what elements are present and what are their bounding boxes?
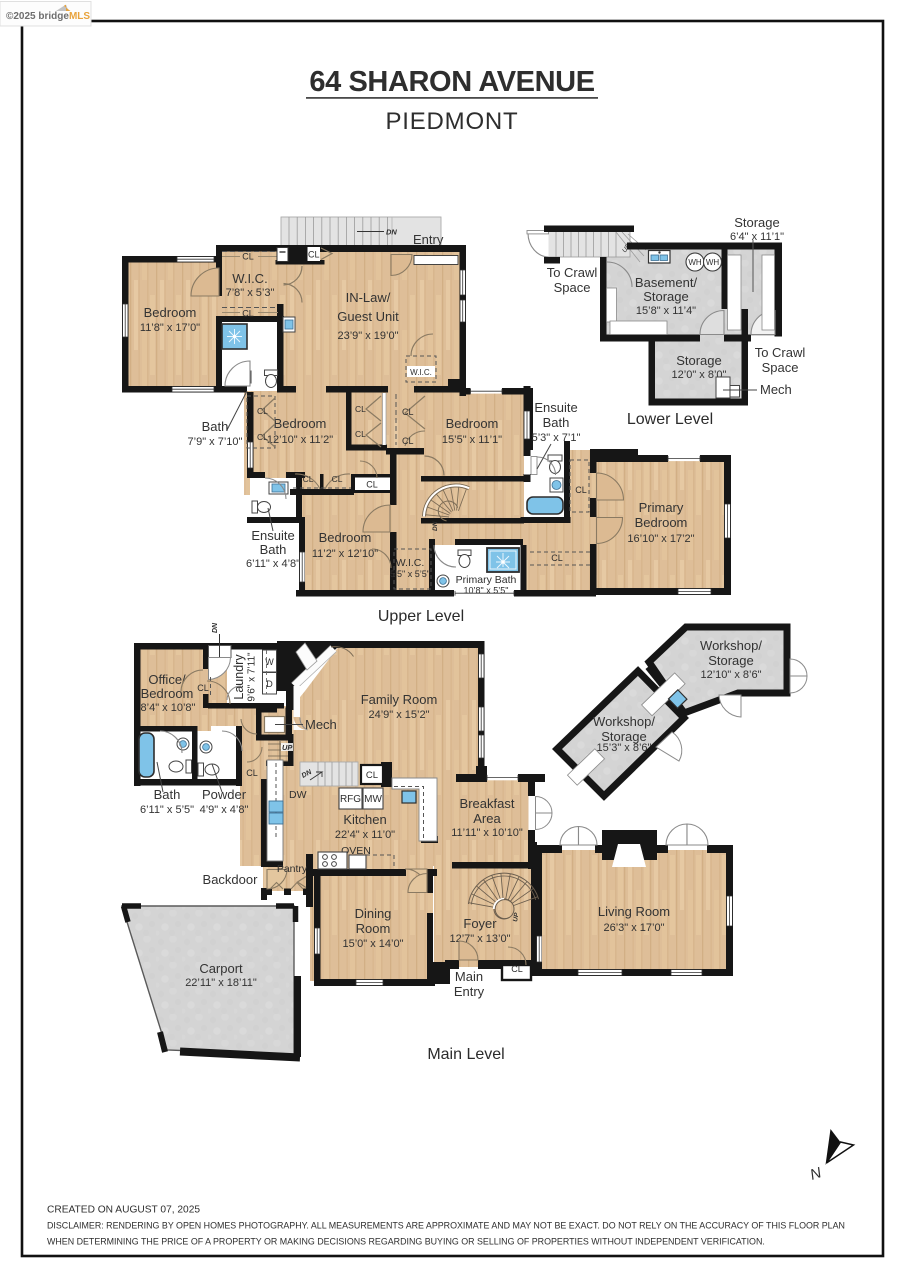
svg-text:9’6" x 7’11": 9’6" x 7’11" — [247, 652, 258, 702]
svg-text:Area: Area — [473, 811, 501, 826]
svg-text:7’9" x 7’10": 7’9" x 7’10" — [188, 436, 243, 448]
svg-text:Storage: Storage — [734, 215, 780, 230]
svg-text:Ensuite: Ensuite — [534, 400, 577, 415]
svg-text:Lower Level: Lower Level — [627, 411, 713, 428]
svg-text:CL: CL — [402, 436, 414, 446]
svg-text:Primary Bath: Primary Bath — [456, 574, 517, 586]
svg-text:Mech: Mech — [760, 382, 792, 397]
svg-text:11’2" x 12’10": 11’2" x 12’10" — [312, 548, 378, 560]
svg-text:6’4" x 11’1": 6’4" x 11’1" — [730, 231, 784, 243]
svg-text:24’9" x 15’2": 24’9" x 15’2" — [368, 709, 429, 721]
svg-text:8’4" x 10’8": 8’4" x 10’8" — [141, 702, 196, 714]
svg-text:Foyer: Foyer — [463, 916, 497, 931]
svg-text:15’5" x 11’1": 15’5" x 11’1" — [442, 434, 502, 446]
svg-text:Workshop/: Workshop/ — [593, 714, 655, 729]
svg-text:15’3" x 8’6": 15’3" x 8’6" — [597, 742, 652, 754]
svg-text:Upper Level: Upper Level — [378, 608, 464, 625]
svg-text:CL: CL — [308, 250, 320, 260]
svg-text:7’8" x 5’3": 7’8" x 5’3" — [226, 287, 275, 299]
svg-text:Powder: Powder — [202, 787, 247, 802]
svg-text:CL: CL — [257, 406, 268, 416]
svg-text:22’11" x 18’11": 22’11" x 18’11" — [185, 977, 257, 989]
svg-text:WH: WH — [706, 258, 720, 267]
svg-text:11’8" x 17’0": 11’8" x 17’0" — [140, 322, 200, 334]
svg-text:26’3" x 17’0": 26’3" x 17’0" — [603, 922, 664, 934]
svg-text:Bath: Bath — [543, 415, 570, 430]
svg-text:12’10" x 11’2": 12’10" x 11’2" — [267, 434, 333, 446]
svg-text:CL: CL — [575, 485, 587, 495]
svg-text:To Crawl: To Crawl — [755, 345, 806, 360]
svg-text:15’0" x 14’0": 15’0" x 14’0" — [342, 938, 403, 950]
svg-text:Entry: Entry — [413, 232, 444, 247]
svg-text:Breakfast: Breakfast — [460, 796, 515, 811]
svg-text:Bedroom: Bedroom — [274, 416, 327, 431]
svg-text:DN: DN — [432, 521, 439, 531]
svg-text:Bath: Bath — [154, 787, 181, 802]
svg-text:Storage: Storage — [643, 289, 689, 304]
svg-text:Kitchen: Kitchen — [343, 812, 386, 827]
svg-text:Space: Space — [554, 280, 591, 295]
svg-text:5’5" x 5’5": 5’5" x 5’5" — [390, 569, 430, 579]
svg-text:Bedroom: Bedroom — [635, 515, 688, 530]
svg-text:DW: DW — [289, 789, 307, 801]
svg-text:Basement/: Basement/ — [635, 275, 698, 290]
svg-text:WH: WH — [688, 258, 702, 267]
svg-text:To Crawl: To Crawl — [547, 265, 598, 280]
svg-text:CL: CL — [551, 553, 563, 563]
svg-text:W.I.C.: W.I.C. — [232, 271, 267, 286]
svg-text:©2025 bridgeMLS: ©2025 bridgeMLS — [6, 11, 90, 22]
svg-text:Pantry: Pantry — [277, 863, 308, 875]
svg-text:11’11" x 10’10": 11’11" x 10’10" — [451, 827, 523, 839]
svg-text:W.I.C.: W.I.C. — [396, 557, 425, 569]
svg-text:12’10" x 8’6": 12’10" x 8’6" — [700, 669, 761, 681]
svg-text:Guest Unit: Guest Unit — [337, 309, 399, 324]
svg-text:PIEDMONT: PIEDMONT — [385, 108, 518, 135]
svg-text:Entry: Entry — [454, 984, 485, 999]
svg-text:Family Room: Family Room — [361, 692, 438, 707]
svg-text:CL: CL — [366, 480, 378, 490]
svg-text:WHEN DETERMINING THE PRICE OF: WHEN DETERMINING THE PRICE OF A PROPERTY… — [47, 1237, 765, 1247]
svg-text:MW: MW — [364, 794, 382, 805]
svg-text:10’8" x 5’5": 10’8" x 5’5" — [464, 586, 509, 596]
svg-text:UP: UP — [282, 743, 293, 752]
svg-text:D: D — [266, 679, 273, 689]
svg-text:Mech: Mech — [305, 717, 337, 732]
svg-text:DN: DN — [212, 622, 219, 633]
svg-text:CL: CL — [402, 407, 414, 417]
svg-text:Space: Space — [762, 360, 799, 375]
svg-text:Storage: Storage — [708, 653, 754, 668]
svg-text:Bath: Bath — [260, 542, 287, 557]
svg-text:6’11" x 5’5": 6’11" x 5’5" — [140, 804, 194, 816]
svg-text:5’3" x 7’1": 5’3" x 7’1" — [532, 432, 581, 444]
svg-text:Ensuite: Ensuite — [251, 528, 294, 543]
svg-text:Storage: Storage — [676, 353, 722, 368]
svg-text:Office/: Office/ — [148, 672, 186, 687]
svg-text:Bedroom: Bedroom — [141, 686, 194, 701]
svg-text:15’8" x 11’4": 15’8" x 11’4" — [636, 305, 696, 317]
svg-text:N: N — [808, 1164, 824, 1184]
svg-text:Bath: Bath — [202, 419, 229, 434]
svg-text:CL: CL — [246, 768, 258, 778]
svg-text:CL: CL — [197, 683, 209, 693]
svg-text:CL: CL — [242, 309, 254, 319]
svg-text:CL: CL — [355, 404, 366, 414]
svg-text:6’11" x 4’8": 6’11" x 4’8" — [246, 558, 300, 570]
svg-text:DN: DN — [386, 228, 397, 237]
svg-text:CL: CL — [355, 429, 366, 439]
svg-text:Bedroom: Bedroom — [446, 416, 499, 431]
svg-text:Living Room: Living Room — [598, 904, 670, 919]
svg-text:Room: Room — [356, 921, 391, 936]
svg-text:Bedroom: Bedroom — [144, 305, 197, 320]
svg-text:RFG: RFG — [340, 794, 361, 805]
svg-text:Backdoor: Backdoor — [203, 872, 259, 887]
svg-text:Dining: Dining — [355, 906, 392, 921]
svg-text:Laundry: Laundry — [232, 654, 246, 700]
svg-text:CL: CL — [511, 964, 523, 974]
svg-text:Bedroom: Bedroom — [319, 530, 372, 545]
svg-text:16’10" x 17’2": 16’10" x 17’2" — [627, 533, 694, 545]
svg-text:CL: CL — [366, 770, 378, 781]
svg-text:Workshop/: Workshop/ — [700, 638, 762, 653]
svg-text:Carport: Carport — [199, 961, 243, 976]
svg-text:4’9" x 4’8": 4’9" x 4’8" — [200, 804, 249, 816]
svg-text:CL: CL — [332, 474, 343, 484]
svg-text:DISCLAIMER: RENDERING BY OPEN: DISCLAIMER: RENDERING BY OPEN HOMES PHOT… — [47, 1221, 845, 1231]
svg-text:CL: CL — [242, 252, 254, 262]
svg-text:IN-Law/: IN-Law/ — [346, 290, 391, 305]
svg-text:W.I.C.: W.I.C. — [410, 368, 432, 377]
svg-text:CREATED ON AUGUST 07, 2025: CREATED ON AUGUST 07, 2025 — [47, 1205, 200, 1216]
svg-text:Main: Main — [455, 969, 483, 984]
svg-text:64 SHARON AVENUE: 64 SHARON AVENUE — [309, 66, 594, 98]
svg-text:CL: CL — [303, 474, 314, 484]
svg-text:22’4" x 11’0": 22’4" x 11’0" — [335, 829, 395, 841]
svg-text:Main Level: Main Level — [427, 1046, 504, 1063]
svg-text:Primary: Primary — [639, 500, 684, 515]
svg-text:23’9" x 19’0": 23’9" x 19’0" — [337, 330, 398, 342]
svg-text:CL: CL — [257, 432, 268, 442]
